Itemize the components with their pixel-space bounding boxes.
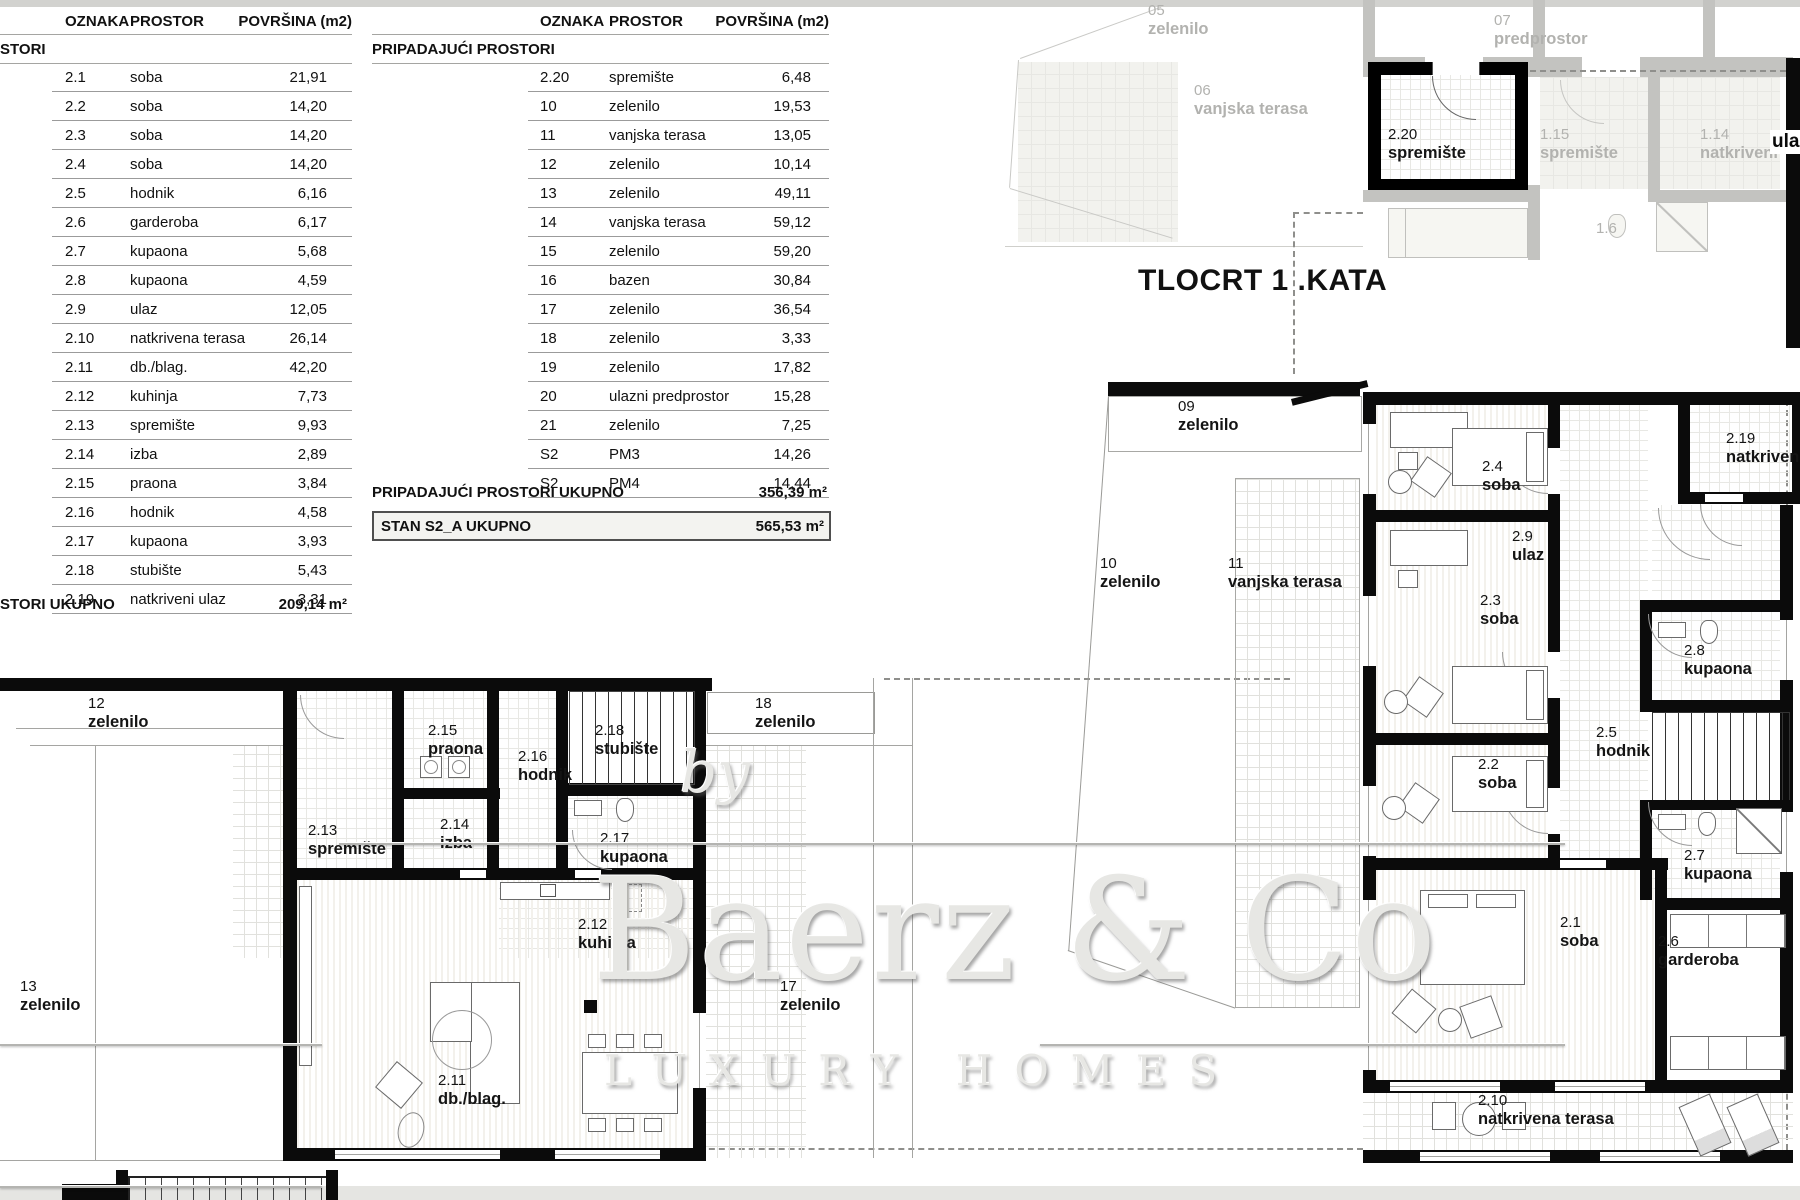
room-name: izba <box>130 446 298 463</box>
room-code: 09 <box>1178 398 1195 415</box>
room-code: 2.10 <box>1478 1092 1507 1109</box>
left-table-header-prostor: PROSTOR <box>130 13 204 30</box>
rug-icon <box>432 1010 492 1070</box>
room-name: hodnik <box>1596 742 1650 761</box>
table-row: 2.10 natkrivena terasa 26,14 <box>52 324 352 353</box>
room-label: 05 zelenilo <box>1148 2 1209 39</box>
door-gap <box>1548 652 1560 698</box>
room-area: 5,68 <box>298 243 352 260</box>
table-row: 2.1 soba 21,91 <box>52 63 352 92</box>
room-name: zelenilo <box>755 713 816 732</box>
room-code: 17 <box>540 301 609 318</box>
table-row: 11 vanjska terasa 13,05 <box>528 121 829 150</box>
room-code: 2.18 <box>595 722 624 739</box>
desk-icon <box>1390 530 1468 566</box>
room-code: 1.15 <box>1540 126 1569 143</box>
kitchen-sink-icon <box>540 884 556 897</box>
room-label: 2.10 natkrivena terasa <box>1478 1092 1614 1129</box>
grand-total-label: STAN S2_A UKUPNO <box>381 518 531 535</box>
room-name: zelenilo <box>609 156 773 173</box>
room-area: 14,20 <box>289 127 352 144</box>
room-area: 3,33 <box>782 330 829 347</box>
room-name: zelenilo <box>20 996 81 1015</box>
door-gap <box>1556 860 1606 868</box>
room-label: 2.8 kupaona <box>1684 642 1752 679</box>
room-name: hodnik <box>130 185 298 202</box>
room-code: 2.14 <box>65 446 130 463</box>
room-code: 2.5 <box>1596 724 1617 741</box>
room-label: 2.11 db./blag. <box>438 1072 506 1109</box>
wall <box>297 868 693 880</box>
stairs <box>1652 712 1790 802</box>
hall-floor <box>1560 404 1648 860</box>
door-gap <box>1705 494 1743 502</box>
room-code: 2.6 <box>65 214 130 231</box>
room-area: 14,26 <box>773 446 829 463</box>
room-name: hodnik <box>130 504 298 521</box>
room-label: 2.12 kuhinja <box>578 916 636 953</box>
wall <box>556 796 568 876</box>
room-code: 2.15 <box>428 722 457 739</box>
room-code: 2.13 <box>65 417 130 434</box>
room-code: 2.8 <box>1684 642 1705 659</box>
window <box>1363 786 1376 856</box>
room-code: 1.6 <box>1596 220 1617 237</box>
room-name: kupaona <box>130 533 298 550</box>
wall <box>1678 392 1800 405</box>
room-code: 12 <box>88 695 105 712</box>
room-name: kupaona <box>600 848 668 867</box>
room-area: 4,59 <box>298 272 352 289</box>
room-code: 06 <box>1194 82 1211 99</box>
washing-machine-icon <box>420 756 442 778</box>
room-area: 3,93 <box>298 533 352 550</box>
room-code: 1.14 <box>1700 126 1729 143</box>
room-name: soba <box>1482 476 1521 495</box>
room-code: 2.14 <box>440 816 469 833</box>
room-code: 2.9 <box>1512 528 1533 545</box>
left-table-header-povrsina: POVRŠINA (m2) <box>238 13 352 30</box>
table-row: 2.8 kupaona 4,59 <box>52 266 352 295</box>
wall <box>326 1170 338 1200</box>
table-row: 18 zelenilo 3,33 <box>528 324 829 353</box>
table-row: 2.13 spremište 9,93 <box>52 411 352 440</box>
room-code: 2.18 <box>65 562 130 579</box>
wall <box>62 1184 124 1200</box>
room-area: 7,73 <box>298 388 352 405</box>
room-name: natkrivena terasa <box>1478 1110 1614 1129</box>
pillow-icon <box>1526 760 1544 808</box>
room-name: soba <box>1480 610 1519 629</box>
boundary-dashed-line <box>1530 70 1786 72</box>
room-name: praona <box>130 475 298 492</box>
room-area: 17,82 <box>773 359 829 376</box>
room-name: zelenilo <box>609 243 773 260</box>
window-line <box>699 1013 700 1088</box>
room-label: 2.17 kupaona <box>600 830 668 867</box>
room-name: soba <box>130 98 289 115</box>
wall <box>1640 700 1792 712</box>
room-code: 17 <box>780 978 797 995</box>
table-row: 2.14 izba 2,89 <box>52 440 352 469</box>
total-value: 209,14 m² <box>279 596 347 613</box>
room-area: 5,43 <box>298 562 352 579</box>
room-label: 2.5 hodnik <box>1596 724 1650 761</box>
wall <box>1655 898 1792 910</box>
room-name: vanjska terasa <box>1228 573 1342 592</box>
table-icon <box>1382 796 1406 820</box>
room-area: 59,20 <box>773 243 829 260</box>
table-row: 2.3 soba 14,20 <box>52 121 352 150</box>
boundary-dashed-line <box>1293 212 1363 214</box>
washing-machine-icon <box>448 756 470 778</box>
terrain-line <box>95 746 96 1160</box>
room-label: 2.14 izba <box>440 816 472 853</box>
chair-icon <box>644 1034 662 1048</box>
room-name: PM3 <box>609 446 773 463</box>
gray-wall <box>1363 190 1528 202</box>
site-line <box>1005 246 1363 247</box>
room-area: 19,53 <box>773 98 829 115</box>
plan-title: TLOCRT 1 .KATA <box>1138 264 1387 298</box>
table-row: 12 zelenilo 10,14 <box>528 150 829 179</box>
room-label: 2.2 soba <box>1478 756 1517 793</box>
room-name: zelenilo <box>780 996 841 1015</box>
window-line <box>1786 620 1787 680</box>
room-name: spremište <box>1388 144 1466 163</box>
room-name: zelenilo <box>609 98 773 115</box>
window-line <box>1555 1086 1645 1087</box>
column <box>584 1000 597 1013</box>
retaining-wall <box>0 678 293 691</box>
room-area: 14,20 <box>289 156 352 173</box>
room-name: predprostor <box>1494 30 1588 49</box>
table-row: 2.18 stubište 5,43 <box>52 556 352 585</box>
table-row: 2.12 kuhinja 7,73 <box>52 382 352 411</box>
window-line <box>1368 424 1369 494</box>
table-row: 2.5 hodnik 6,16 <box>52 179 352 208</box>
wall <box>1640 600 1792 612</box>
wall <box>1376 510 1552 522</box>
table-row: 2.20 spremište 6,48 <box>528 63 829 92</box>
room-area: 59,12 <box>773 214 829 231</box>
terrain-line <box>0 1160 283 1161</box>
room-code: 2.5 <box>65 185 130 202</box>
room-label: 18 zelenilo <box>755 695 816 732</box>
room-code: 2.6 <box>1658 933 1679 950</box>
room-area: 13,05 <box>773 127 829 144</box>
chair-icon <box>644 1118 662 1132</box>
room-code: 2.16 <box>518 748 547 765</box>
door-gap <box>1548 788 1560 834</box>
chair-icon <box>616 1034 634 1048</box>
toilet-icon <box>616 798 634 822</box>
room-label: 12 zelenilo <box>88 695 149 732</box>
room-name: soba <box>130 127 289 144</box>
room-code: 2.1 <box>1560 914 1581 931</box>
room-name: zelenilo <box>609 359 773 376</box>
room-name: stubište <box>595 740 658 759</box>
window-line <box>1368 596 1369 666</box>
bed-headboard-icon <box>1388 208 1406 258</box>
room-name: izba <box>440 834 472 853</box>
window <box>1363 900 1376 1070</box>
gray-wall <box>1648 190 1793 202</box>
room-code: 2.12 <box>578 916 607 933</box>
room-name: praona <box>428 740 483 759</box>
table-row: 2.9 ulaz 12,05 <box>52 295 352 324</box>
room-code: 13 <box>540 185 609 202</box>
room-name: soba <box>1478 774 1517 793</box>
fridge-icon <box>614 884 642 912</box>
room-name: garderoba <box>130 214 298 231</box>
table-row: 2.7 kupaona 5,68 <box>52 237 352 266</box>
gray-wall <box>1703 0 1715 57</box>
site-line <box>1020 7 1161 59</box>
site-slant-line <box>1068 396 1109 951</box>
room-area: 12,05 <box>289 301 352 318</box>
window-line <box>1368 900 1369 1070</box>
gray-door-gap <box>1582 57 1640 77</box>
room-label: 06 vanjska terasa <box>1194 82 1308 119</box>
room-code: 2.20 <box>540 69 609 86</box>
room-area: 21,91 <box>289 69 352 86</box>
total-label: PRIPADAJUĆI PROSTORI UKUPNO <box>372 484 624 501</box>
room-name: vanjska terasa <box>1194 100 1308 119</box>
room-code: 07 <box>1494 12 1511 29</box>
room-label: 07 predprostor <box>1494 12 1588 49</box>
chair-icon <box>616 1118 634 1132</box>
window-line <box>1390 1086 1500 1087</box>
bed-icon <box>1388 208 1528 258</box>
table-row: 21 zelenilo 7,25 <box>528 411 829 440</box>
room-area: 6,16 <box>298 185 352 202</box>
right-area-table: 2.20 spremište 6,48 10 zelenilo 19,53 11… <box>528 63 829 498</box>
gray-wall <box>1363 0 1375 57</box>
room-label: ula <box>1770 130 1800 154</box>
room-name: spremište <box>609 69 782 86</box>
pillow-icon <box>1476 894 1516 908</box>
room-area: 15,28 <box>773 388 829 405</box>
right-table-header-prostor: PROSTOR <box>609 13 683 30</box>
chair-icon <box>1398 570 1418 588</box>
chair-icon <box>588 1118 606 1132</box>
terrain-line <box>873 678 874 1158</box>
room-name: ulaz <box>130 301 289 318</box>
room-code: 2.2 <box>65 98 130 115</box>
room-name: stubište <box>130 562 298 579</box>
pillow-icon <box>1526 432 1544 482</box>
left-table-section: STORI <box>0 41 46 58</box>
table-line <box>0 34 352 35</box>
room-code: 2.3 <box>1480 592 1501 609</box>
wall <box>283 678 297 1160</box>
total-value: 356,39 m² <box>759 484 827 501</box>
door-gap <box>1548 448 1560 494</box>
room-area: 26,14 <box>289 330 352 347</box>
room-code: 2.15 <box>65 475 130 492</box>
door-gap <box>575 870 601 878</box>
table-row: S2 PM3 14,26 <box>528 440 829 469</box>
room-code: 2.12 <box>65 388 130 405</box>
room-code: 2.4 <box>1482 458 1503 475</box>
room-area: 10,14 <box>773 156 829 173</box>
room-code: 14 <box>540 214 609 231</box>
room-label: 1.14 natkriveni <box>1700 126 1778 163</box>
room-area: 42,20 <box>289 359 352 376</box>
room-code: 11 <box>1228 555 1244 572</box>
wall <box>487 690 499 876</box>
room-name: soba <box>130 69 289 86</box>
room-code: 16 <box>540 272 609 289</box>
table-row: 2.2 soba 14,20 <box>52 92 352 121</box>
terrace-strip <box>706 746 806 1158</box>
room-area: 3,84 <box>298 475 352 492</box>
terrain-line <box>16 728 283 729</box>
room-name: zelenilo <box>609 301 773 318</box>
toilet-icon <box>1700 620 1718 644</box>
window-line <box>1786 812 1787 872</box>
table-row: 19 zelenilo 17,82 <box>528 353 829 382</box>
room-name: kuhinja <box>578 934 636 953</box>
room-name: soba <box>1560 932 1599 951</box>
pillow-icon <box>1526 670 1544 720</box>
room-label: 2.1 soba <box>1560 914 1599 951</box>
window-line <box>1600 1156 1720 1157</box>
table-row: 17 zelenilo 36,54 <box>528 295 829 324</box>
chair-icon <box>1432 1102 1456 1130</box>
room-code: 05 <box>1148 2 1165 19</box>
grand-total-value: 565,53 m² <box>756 518 824 535</box>
table-row: 2.17 kupaona 3,93 <box>52 527 352 556</box>
table-row: 14 vanjska terasa 59,12 <box>528 208 829 237</box>
room-label: 2.13 spremište <box>308 822 386 859</box>
room-label: 1.15 spremište <box>1540 126 1618 163</box>
toilet-icon <box>1698 812 1716 836</box>
room-name: natkrivena terasa <box>130 330 289 347</box>
party-wall <box>1786 58 1800 348</box>
apartment-grand-total: STAN S2_A UKUPNO 565,53 m² <box>372 511 831 541</box>
room-name: zelenilo <box>88 713 149 732</box>
room-label: 2.4 soba <box>1482 458 1521 495</box>
table-row: 2.6 garderoba 6,17 <box>52 208 352 237</box>
room-code: 2.4 <box>65 156 130 173</box>
right-table-header-oznaka: OZNAKA <box>540 13 604 30</box>
room-name: bazen <box>609 272 773 289</box>
room-code: 2.19 <box>1726 430 1755 447</box>
room-code: 11 <box>540 127 609 144</box>
room-label: 10 zelenilo <box>1100 555 1161 592</box>
room-label: 2.19 natkriven <box>1726 430 1799 467</box>
room-code: 2.2 <box>1478 756 1499 773</box>
room-code: 2.11 <box>65 359 130 376</box>
table-row: 2.15 praona 3,84 <box>52 469 352 498</box>
room-code: 2.7 <box>65 243 130 260</box>
room-label: 2.7 kupaona <box>1684 847 1752 884</box>
table-row: 10 zelenilo 19,53 <box>528 92 829 121</box>
right-table-total: PRIPADAJUĆI PROSTORI UKUPNO 356,39 m² <box>372 484 827 501</box>
table-row: 2.11 db./blag. 42,20 <box>52 353 352 382</box>
room-name: ula <box>1772 131 1799 153</box>
room-name: soba <box>130 156 289 173</box>
table-row: 16 bazen 30,84 <box>528 266 829 295</box>
room-code: 15 <box>540 243 609 260</box>
table-line <box>372 34 829 35</box>
table-icon <box>1384 690 1408 714</box>
window-line <box>1368 786 1369 856</box>
room-name: zelenilo <box>609 185 775 202</box>
chair-icon <box>1398 452 1418 470</box>
pillow-icon <box>1428 894 1468 908</box>
room-name: kupaona <box>130 243 298 260</box>
room-name: vanjska terasa <box>609 127 773 144</box>
room-area: 30,84 <box>773 272 829 289</box>
room-label: 1.6 <box>1596 220 1617 238</box>
floor-plan-sheet: OZNAKA PROSTOR POVRŠINA (m2) STORI OZNAK… <box>0 0 1800 1200</box>
room-code: 2.11 <box>438 1072 466 1089</box>
room-area: 6,17 <box>298 214 352 231</box>
room-name: garderoba <box>1658 951 1739 970</box>
window <box>1363 424 1376 494</box>
door-gap <box>460 870 486 878</box>
wall <box>1376 733 1552 745</box>
room-area: 7,25 <box>782 417 829 434</box>
window-line <box>1420 1156 1550 1157</box>
room-code: 2.10 <box>65 330 130 347</box>
table-row: 20 ulazni predprostor 15,28 <box>528 382 829 411</box>
room-code: 2.17 <box>600 830 629 847</box>
wall <box>404 788 500 799</box>
room-area: 6,48 <box>782 69 829 86</box>
window <box>1363 596 1376 666</box>
left-area-table: 2.1 soba 21,91 2.2 soba 14,20 2.3 soba 1… <box>52 63 352 614</box>
room-name: vanjska terasa <box>609 214 773 231</box>
room-name: zelenilo <box>1148 20 1209 39</box>
room-code: 2.3 <box>65 127 130 144</box>
table-row: 15 zelenilo 59,20 <box>528 237 829 266</box>
table-row: 2.16 hodnik 4,58 <box>52 498 352 527</box>
watermark-rule <box>0 1044 322 1046</box>
room-area: 14,20 <box>289 98 352 115</box>
sink-icon <box>574 800 602 816</box>
terrace-strip <box>233 746 283 958</box>
room-code: 10 <box>540 98 609 115</box>
room-name: db./blag. <box>130 359 289 376</box>
room-code: 2.17 <box>65 533 130 550</box>
room-name: spremište <box>1540 144 1618 163</box>
gray-wall <box>1648 77 1660 195</box>
room-name: zelenilo <box>609 330 782 347</box>
room-label: 17 zelenilo <box>780 978 841 1015</box>
right-table-header-povrsina: POVRŠINA (m2) <box>715 13 829 30</box>
table-row: 2.4 soba 14,20 <box>52 150 352 179</box>
wall <box>392 690 404 876</box>
room-name: hodnik <box>518 766 572 785</box>
window-line <box>555 1154 660 1155</box>
top-page-edge <box>0 0 1800 7</box>
room-code: 2.13 <box>308 822 337 839</box>
room-code: 18 <box>755 695 772 712</box>
room-code: 2.9 <box>65 301 130 318</box>
room-label: 11 vanjska terasa <box>1228 555 1342 592</box>
room-code: 2.16 <box>65 504 130 521</box>
right-table-section: PRIPADAJUĆI PROSTORI <box>372 41 555 58</box>
room-code: 10 <box>1100 555 1117 572</box>
room-label: 2.18 stubište <box>595 722 658 759</box>
outdoor-stairs <box>128 1176 330 1200</box>
room-area: 4,58 <box>298 504 352 521</box>
shower-icon <box>1656 202 1708 252</box>
